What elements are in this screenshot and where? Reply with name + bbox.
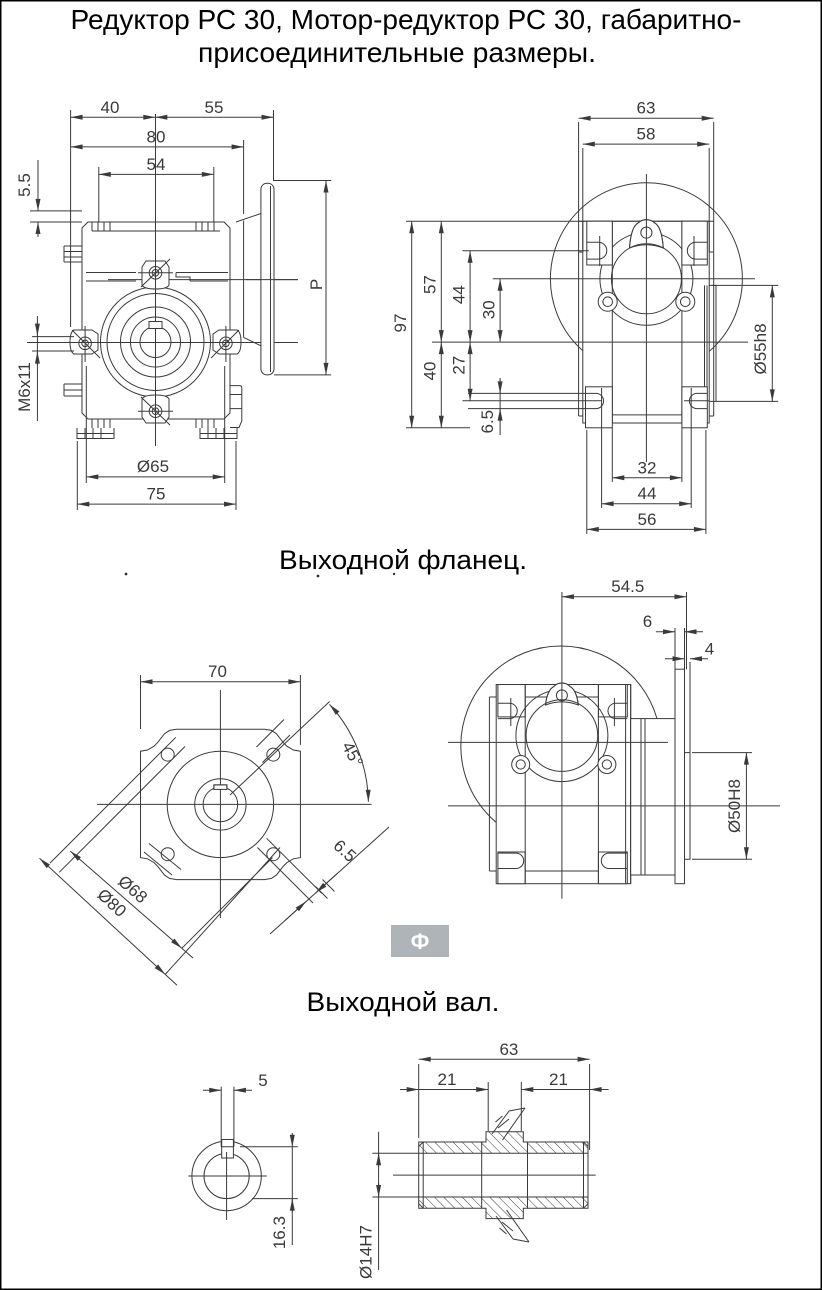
svg-text:63: 63: [499, 1040, 518, 1059]
svg-text:57: 57: [421, 275, 440, 294]
svg-text:Ø50H8: Ø50H8: [725, 779, 744, 833]
svg-text:4: 4: [705, 639, 714, 658]
svg-text:44: 44: [638, 484, 657, 503]
svg-text:80: 80: [147, 128, 166, 147]
svg-text:44: 44: [449, 285, 468, 304]
svg-text:75: 75: [147, 485, 166, 504]
svg-text:21: 21: [549, 1070, 568, 1089]
svg-text:5: 5: [258, 1071, 267, 1090]
svg-text:54.5: 54.5: [611, 577, 644, 596]
svg-text:58: 58: [637, 125, 656, 144]
svg-text:Выходной вал.: Выходной вал.: [307, 987, 500, 1017]
svg-text:32: 32: [638, 458, 657, 477]
svg-text:Выходной фланец.: Выходной фланец.: [279, 545, 527, 575]
svg-text:40: 40: [421, 362, 440, 381]
svg-text:5.5: 5.5: [15, 173, 34, 197]
svg-text:27: 27: [449, 356, 468, 375]
svg-text:30: 30: [479, 300, 498, 319]
svg-text:Редуктор РС 30, Мотор-редуктор: Редуктор РС 30, Мотор-редуктор РС 30, га…: [71, 4, 742, 35]
svg-text:21: 21: [438, 1070, 457, 1089]
svg-text:P: P: [307, 279, 326, 290]
svg-text:55: 55: [205, 98, 224, 117]
svg-text:56: 56: [638, 510, 657, 529]
svg-text:Ø14H7: Ø14H7: [357, 1225, 376, 1279]
svg-text:70: 70: [208, 662, 227, 681]
svg-text:присоединительные размеры.: присоединительные размеры.: [198, 37, 596, 68]
svg-text:6.5: 6.5: [478, 410, 497, 434]
svg-text:M6x11: M6x11: [15, 362, 34, 412]
svg-text:63: 63: [637, 99, 656, 118]
svg-text:Ø55h8: Ø55h8: [751, 323, 770, 374]
svg-text:Ø65: Ø65: [137, 457, 169, 476]
svg-text:97: 97: [391, 314, 410, 333]
svg-text:54: 54: [147, 155, 166, 174]
svg-text:16.3: 16.3: [270, 1216, 289, 1249]
svg-text:40: 40: [101, 98, 120, 117]
svg-text:Ф: Ф: [411, 929, 430, 954]
svg-text:6: 6: [643, 612, 652, 631]
